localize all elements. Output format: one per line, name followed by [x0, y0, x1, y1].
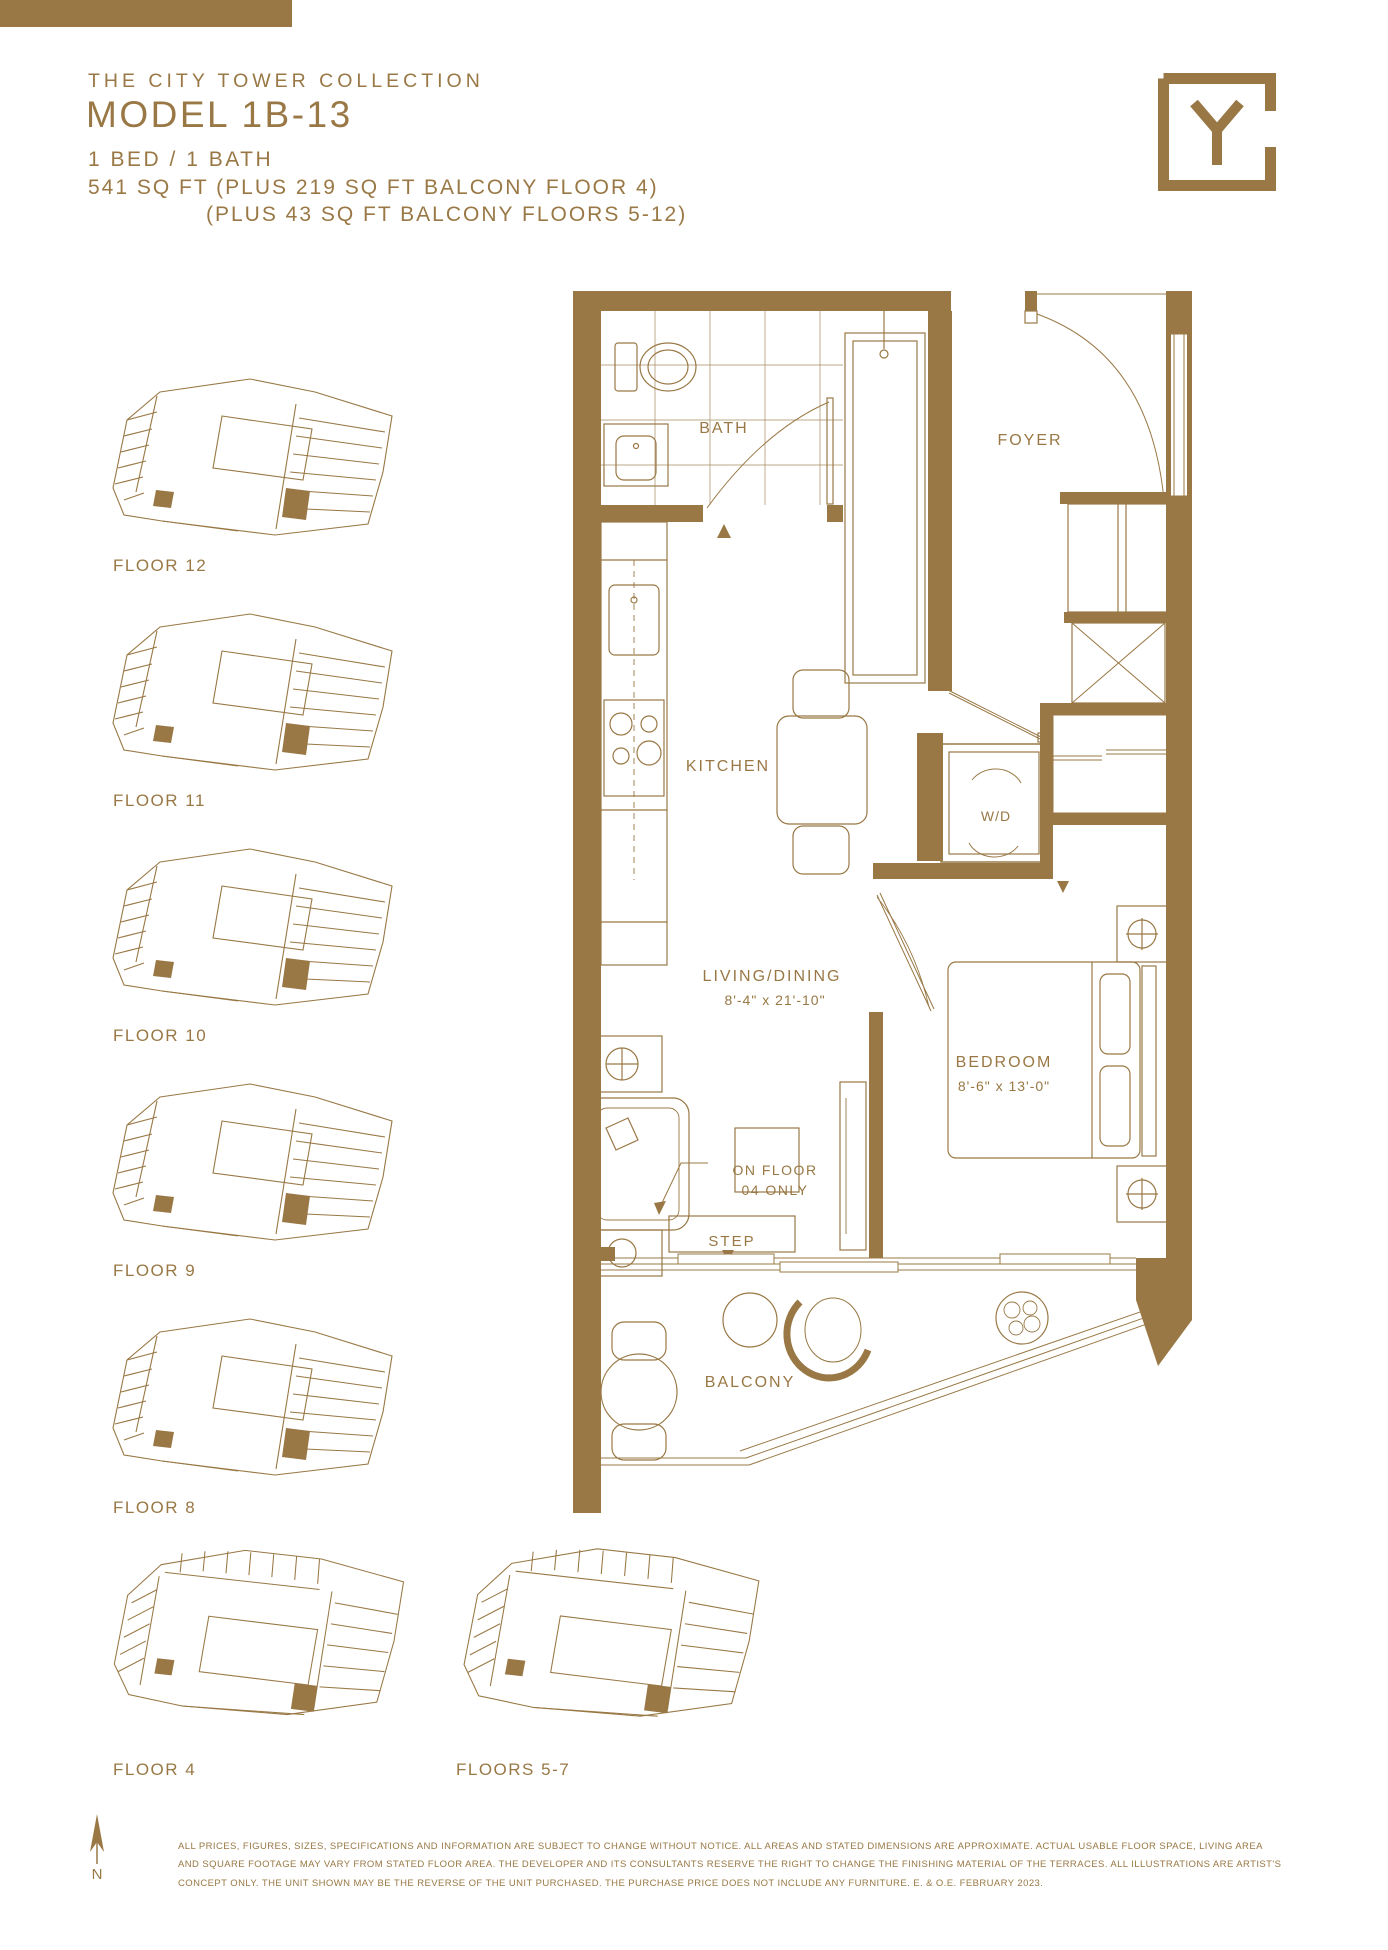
key-plan-label: FLOOR 9: [113, 1261, 196, 1281]
disclaimer-line: AND SQUARE FOOTAGE MAY VARY FROM STATED …: [178, 1856, 1338, 1874]
key-plan-floors-5-7: [445, 1542, 775, 1722]
north-arrow-icon: [84, 1812, 110, 1866]
room-label-bath: BATH: [699, 420, 748, 437]
key-plan-floor-12: [100, 372, 400, 542]
key-plan-floor-11: [100, 607, 400, 777]
north-label: N: [84, 1866, 110, 1883]
logo-y: [1194, 103, 1240, 165]
brand-logo-icon: Y: [1158, 73, 1276, 191]
key-plan-figure: [100, 607, 400, 777]
foyer-window: [1171, 334, 1187, 496]
key-plan-figure: [100, 372, 400, 542]
key-plan-label: FLOOR 11: [113, 791, 206, 811]
key-plan-label: FLOOR 4: [113, 1760, 196, 1780]
room-label-bedroom: BEDROOM: [956, 1054, 1053, 1071]
key-plan-label: FLOORS 5-7: [456, 1760, 570, 1780]
disclaimer: ALL PRICES, FIGURES, SIZES, SPECIFICATIO…: [178, 1838, 1338, 1893]
room-dims-living: 8'-4" x 21'-10": [724, 992, 825, 1008]
room-label-foyer: FOYER: [997, 432, 1062, 449]
disclaimer-line: CONCEPT ONLY. THE UNIT SHOWN MAY BE THE …: [178, 1875, 1338, 1893]
room-label-kitchen: KITCHEN: [686, 758, 770, 775]
key-plan-label: FLOOR 12: [113, 556, 207, 576]
note-04-only: 04 ONLY: [741, 1182, 808, 1198]
fixtures: [587, 311, 1192, 1465]
key-plan-figure: [100, 1077, 400, 1247]
key-plan-figure: [100, 842, 400, 1012]
room-label-living: LIVING/DINING: [703, 968, 842, 985]
room-label-wd: W/D: [981, 808, 1011, 824]
key-plan-label: FLOOR 8: [113, 1498, 196, 1518]
spec-bed-bath: 1 BED / 1 BATH: [88, 148, 273, 172]
room-label-balcony: BALCONY: [705, 1374, 795, 1391]
room-dims-bedroom: 8'-6" x 13'-0": [958, 1078, 1050, 1094]
foyer-window-mullions: [1037, 294, 1187, 496]
key-plan-floor-9: [100, 1077, 400, 1247]
key-plan-floor-8: [100, 1312, 400, 1482]
top-accent-bar: [0, 0, 292, 27]
key-plan-floor-10: [100, 842, 400, 1012]
spec-area-line1: 541 SQ FT (PLUS 219 SQ FT BALCONY FLOOR …: [88, 176, 659, 200]
key-plan-figure: [100, 1542, 415, 1722]
spec-area-line2: (PLUS 43 SQ FT BALCONY FLOORS 5-12): [206, 203, 687, 227]
key-plan-label: FLOOR 10: [113, 1026, 207, 1046]
key-plan-floor-4: [100, 1542, 415, 1722]
key-plan-figure: [100, 1312, 400, 1482]
key-plan-figure: [445, 1542, 775, 1722]
collection-title: THE CITY TOWER COLLECTION: [88, 70, 484, 93]
brochure-page: THE CITY TOWER COLLECTION MODEL 1B-13 1 …: [0, 0, 1388, 1950]
step-label: STEP: [708, 1233, 755, 1250]
bath-tiles: [601, 311, 843, 505]
note-on-floor: ON FLOOR: [732, 1162, 817, 1178]
page-title-model: MODEL 1B-13: [86, 94, 353, 136]
disclaimer-line: ALL PRICES, FIGURES, SIZES, SPECIFICATIO…: [178, 1838, 1338, 1856]
main-floorplan: BATH FOYER KITCHEN W/D LIVING/DINING 8'-…: [555, 280, 1205, 1520]
